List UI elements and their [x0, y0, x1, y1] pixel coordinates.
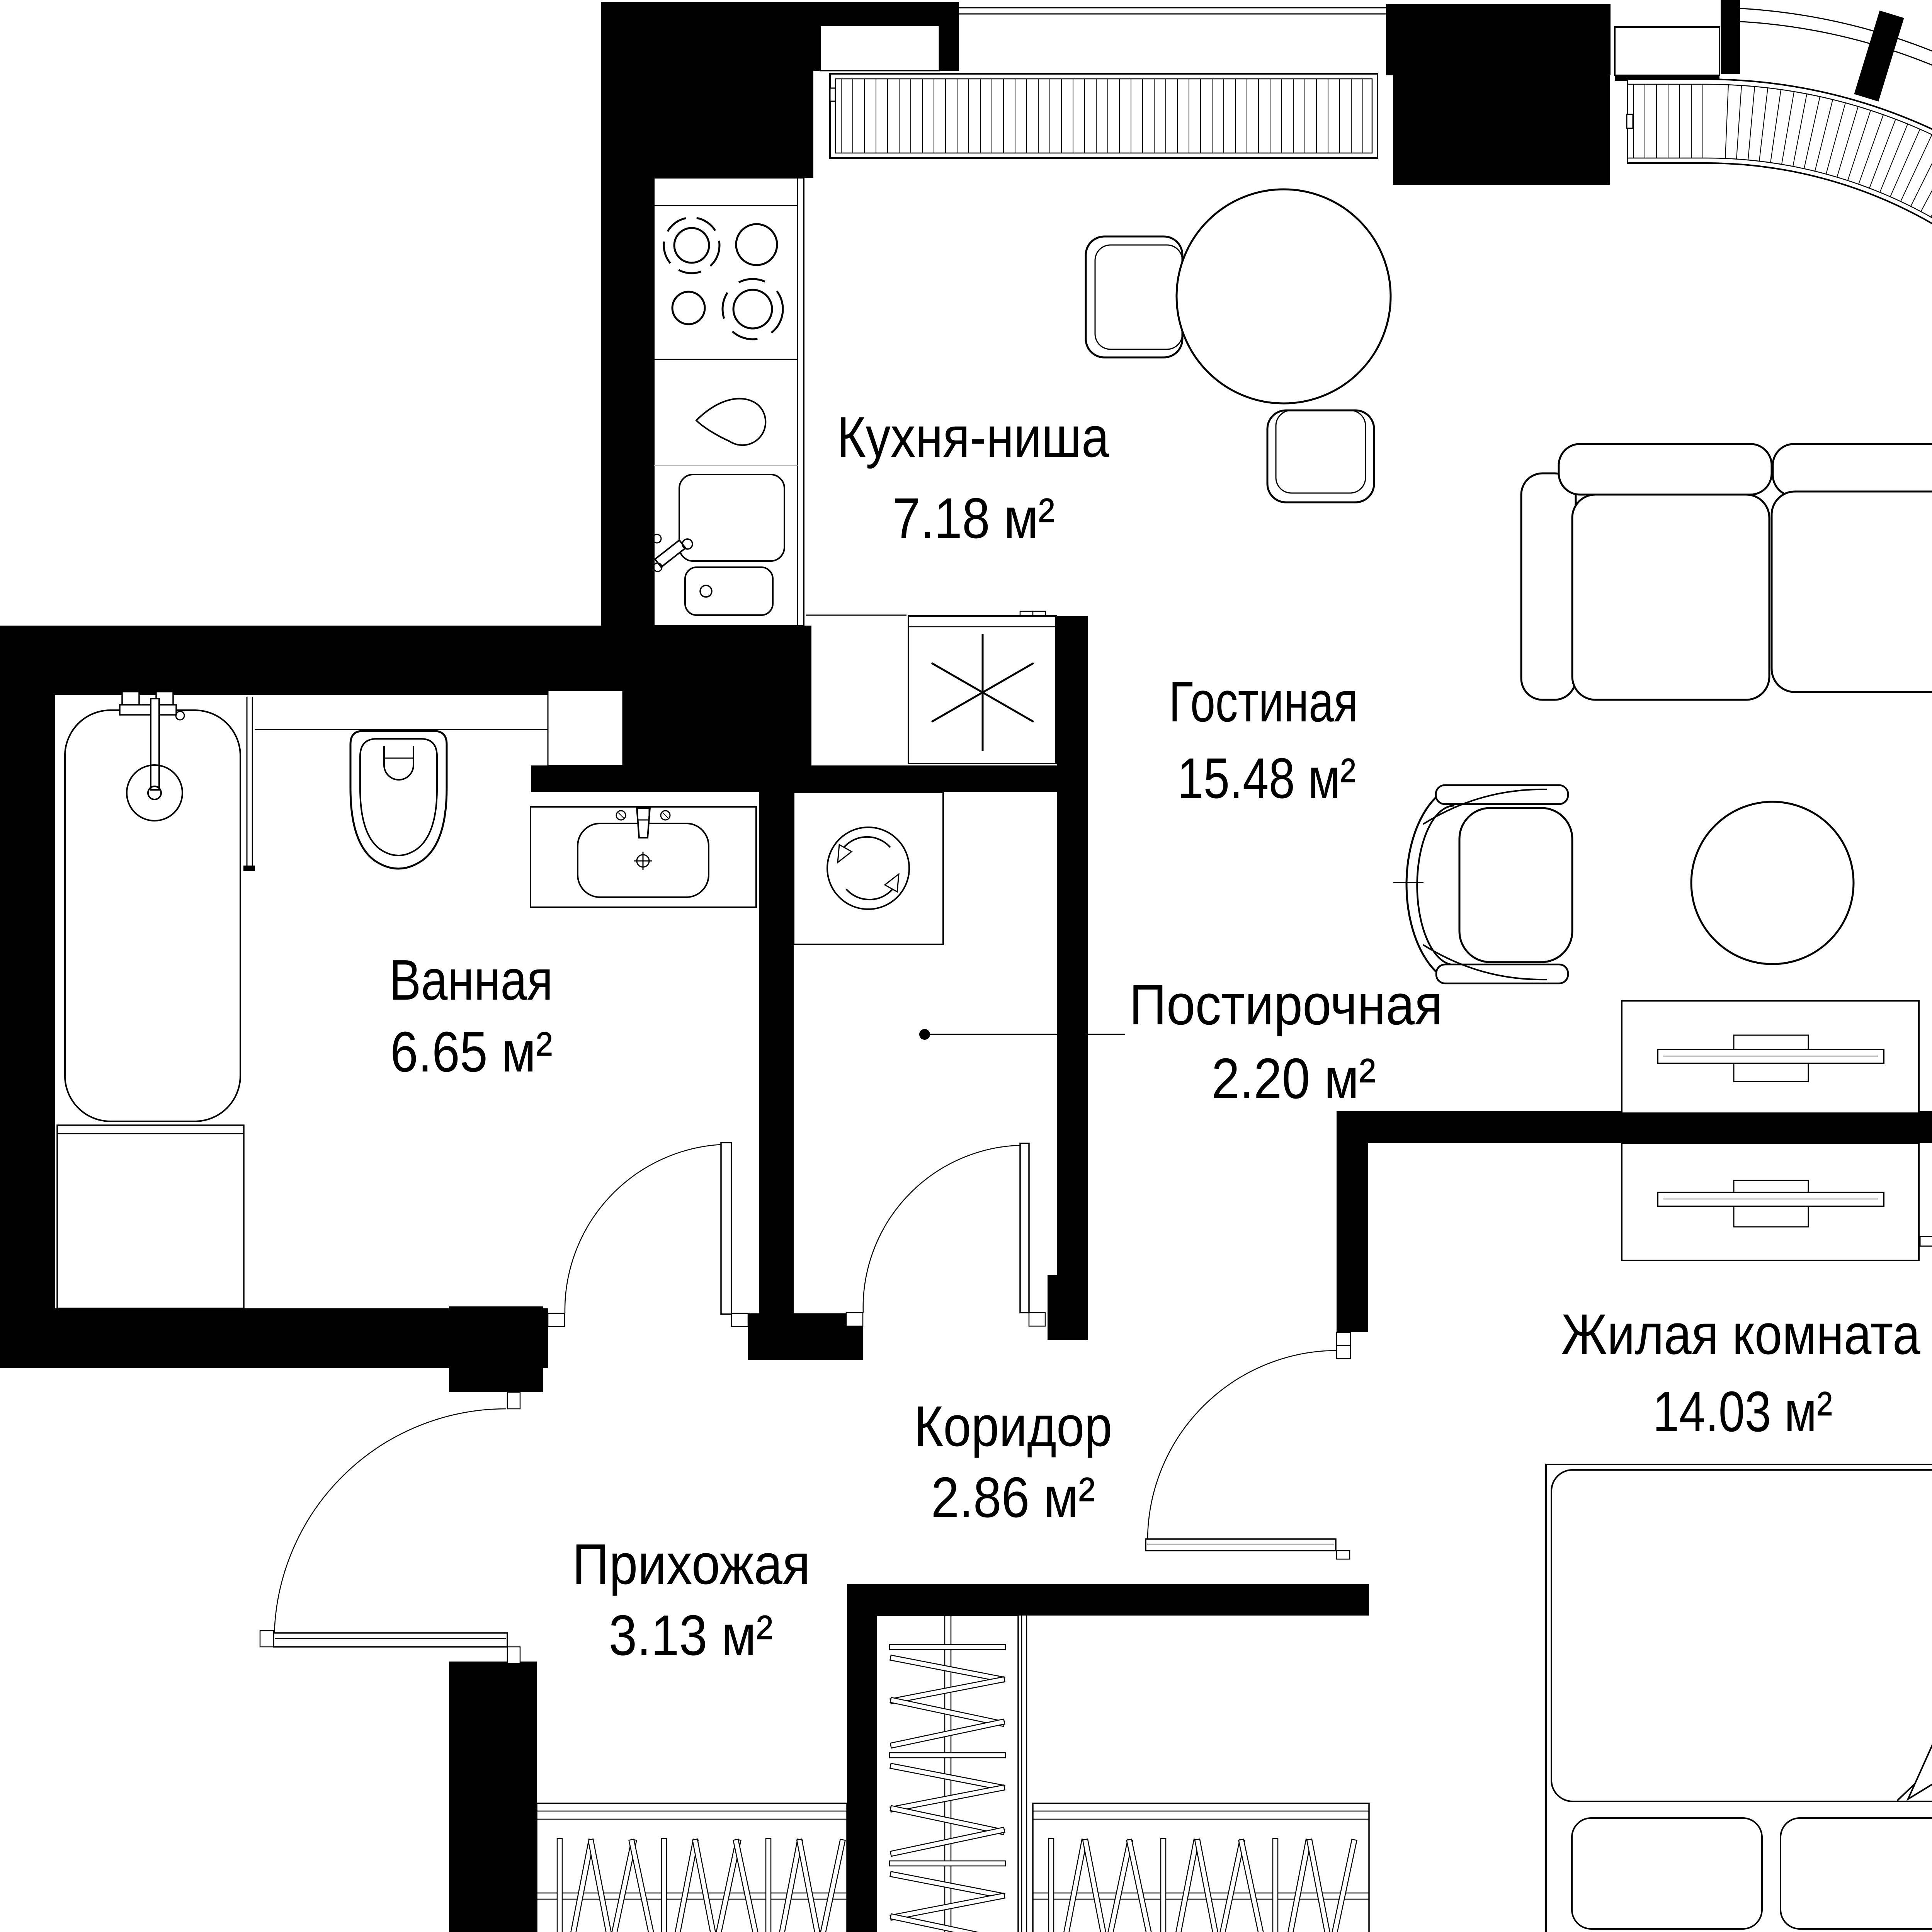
svg-text:Кухня-ниша: Кухня-ниша	[837, 405, 1110, 469]
svg-text:Прихожая: Прихожая	[572, 1532, 810, 1596]
svg-text:14.03 м²: 14.03 м²	[1653, 1380, 1833, 1444]
svg-text:15.48 м²: 15.48 м²	[1177, 747, 1356, 810]
svg-text:Гостиная: Гостиная	[1169, 670, 1358, 734]
svg-text:6.65 м²: 6.65 м²	[390, 1020, 553, 1084]
svg-text:Ванная: Ванная	[389, 948, 553, 1012]
svg-text:Коридор: Коридор	[914, 1395, 1112, 1458]
svg-text:3.13 м²: 3.13 м²	[609, 1604, 773, 1667]
svg-text:2.86 м²: 2.86 м²	[931, 1466, 1095, 1529]
svg-text:Постирочная: Постирочная	[1129, 973, 1443, 1037]
svg-text:7.18 м²: 7.18 м²	[893, 486, 1055, 550]
svg-text:2.20 м²: 2.20 м²	[1212, 1047, 1376, 1111]
svg-text:Жилая комната: Жилая комната	[1561, 1303, 1921, 1366]
